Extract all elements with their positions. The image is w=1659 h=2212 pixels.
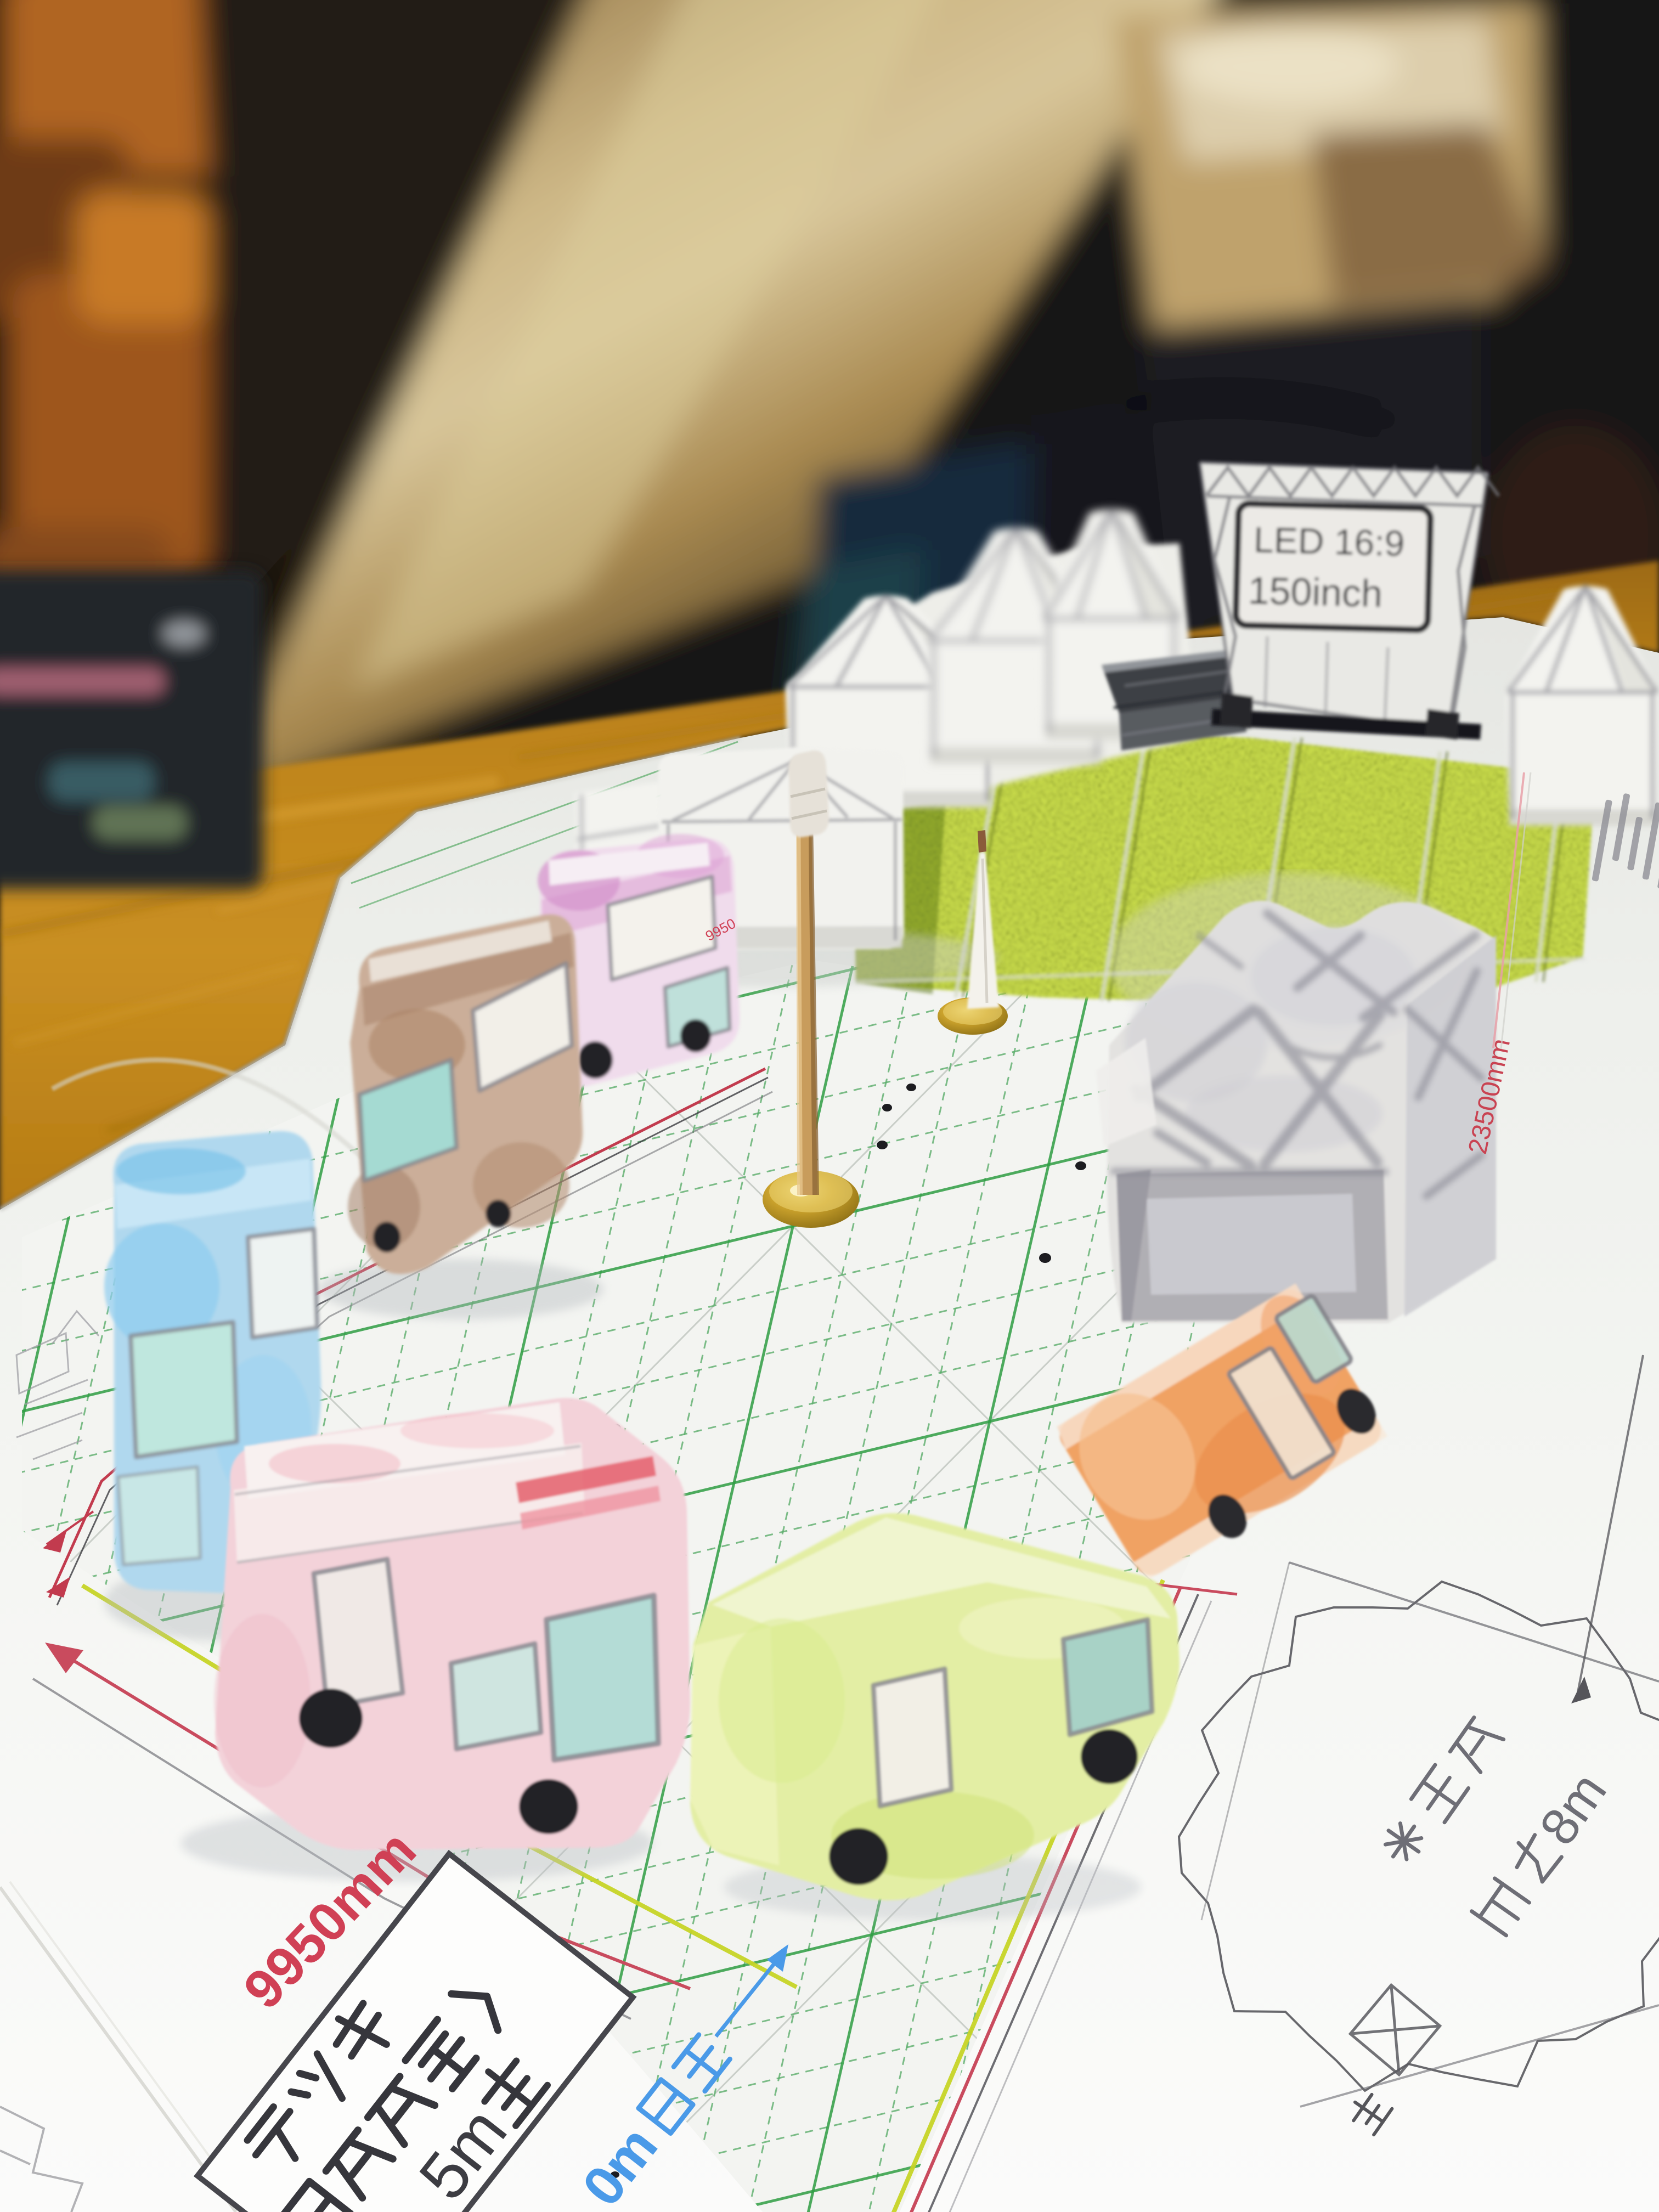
svg-text:LED 16:9: LED 16:9 (1253, 519, 1405, 563)
svg-text:150inch: 150inch (1248, 569, 1383, 615)
